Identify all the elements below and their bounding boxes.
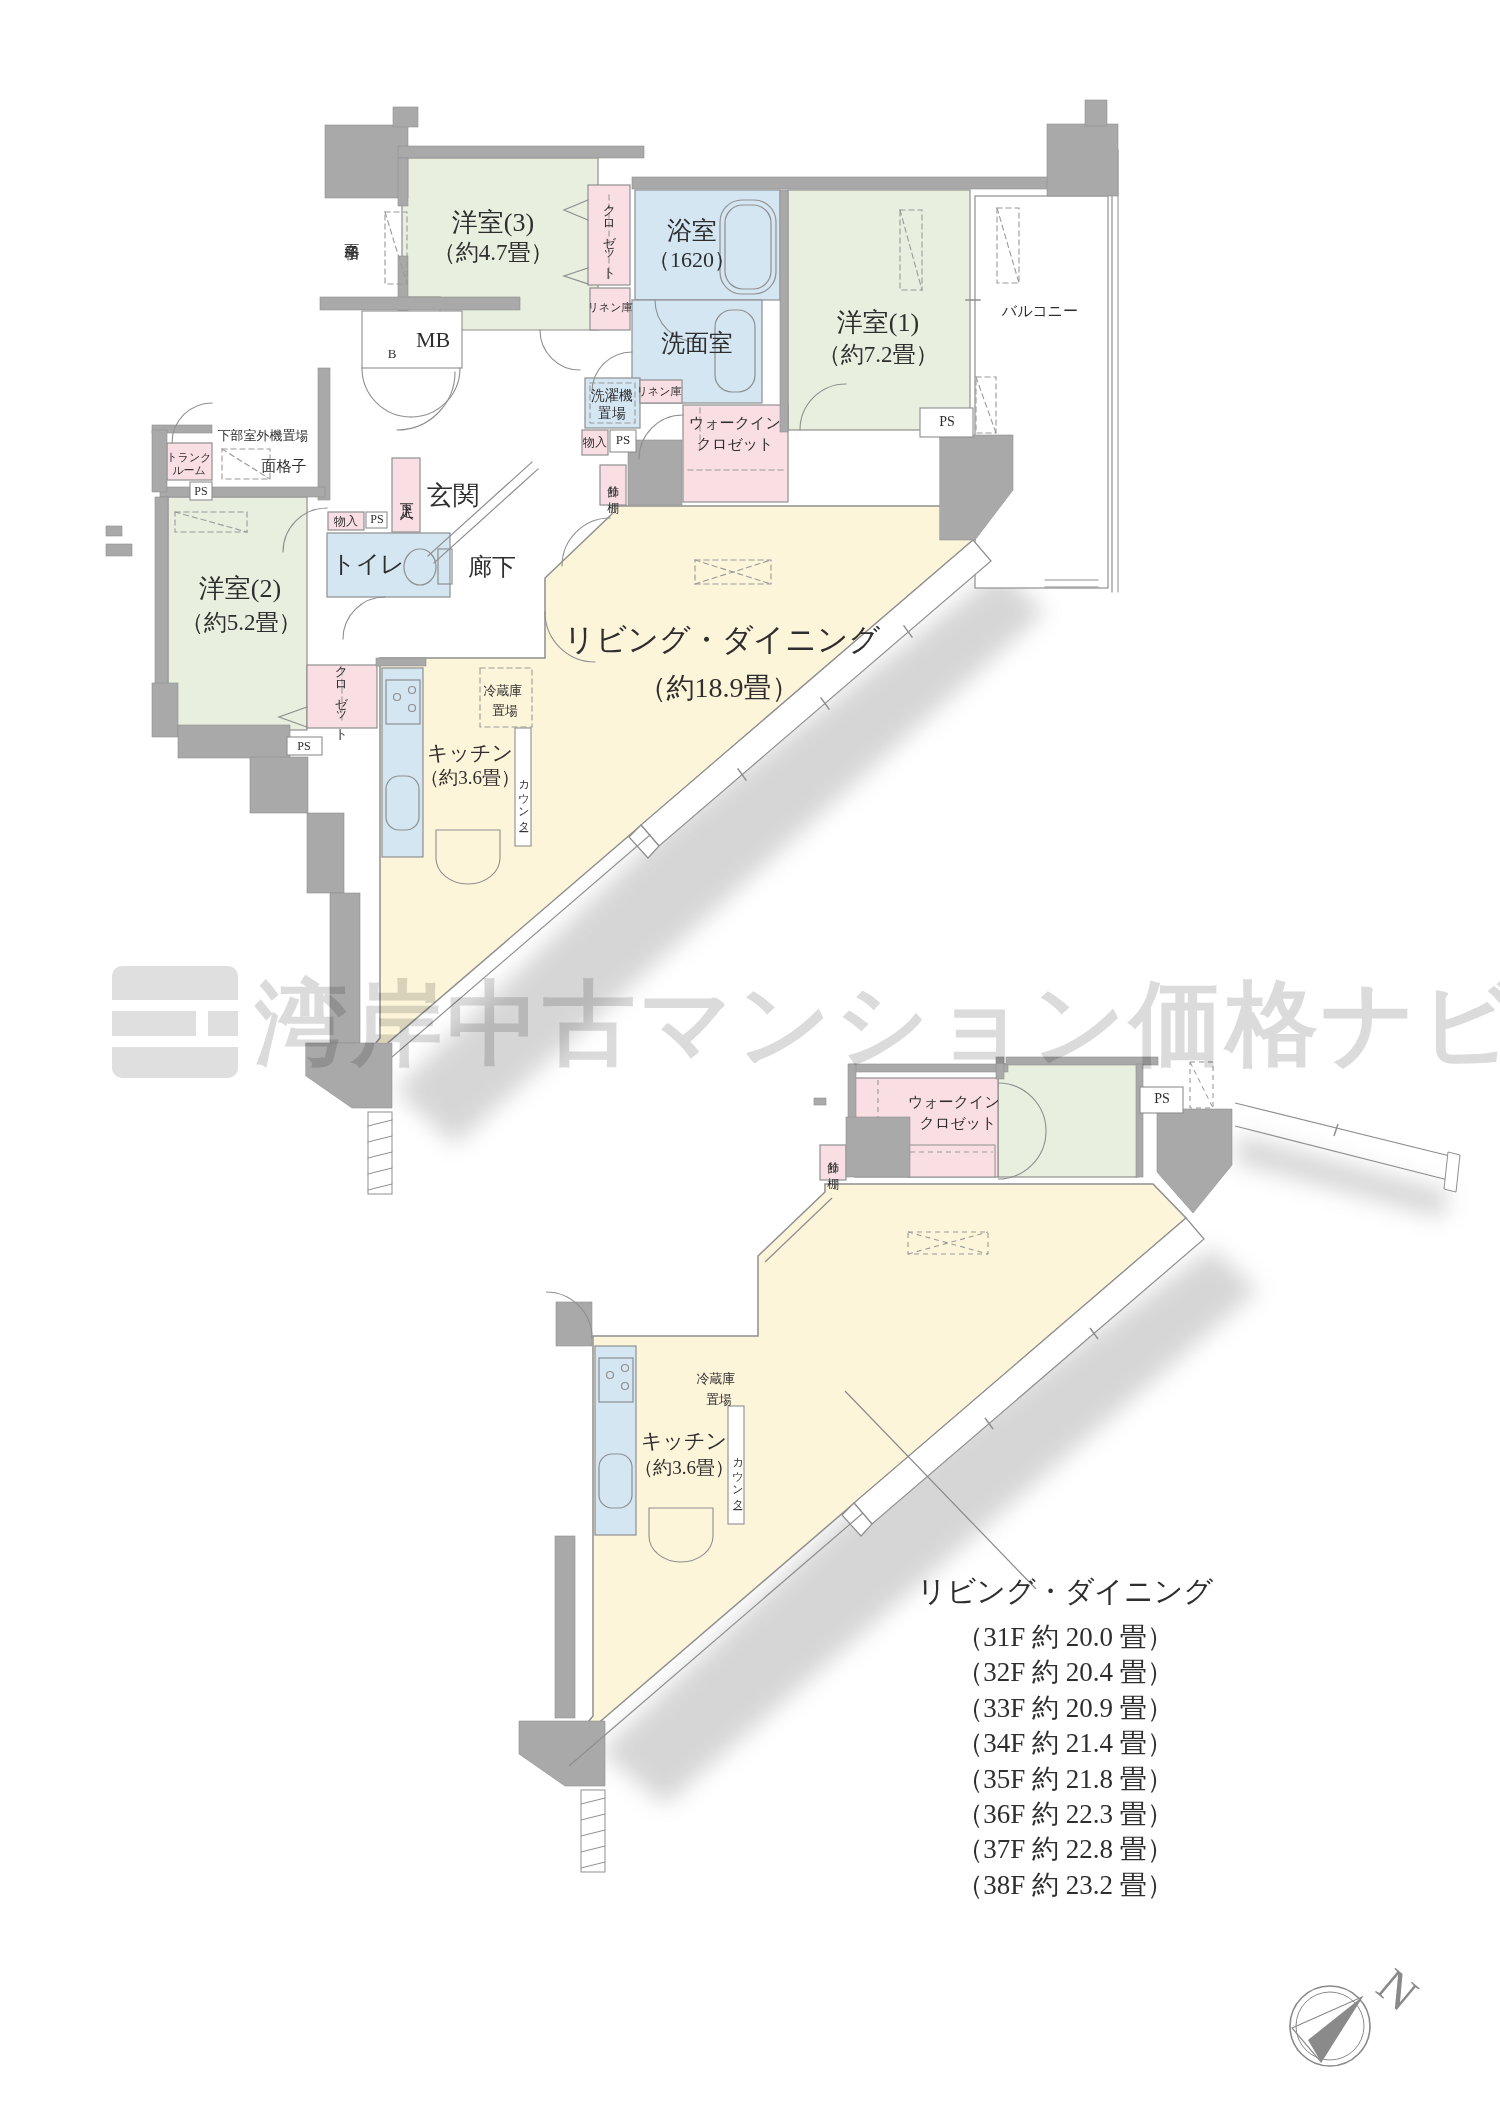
label-mb: MB (416, 328, 450, 351)
label-closet3: クロゼット (602, 195, 616, 274)
label-reizouko-lower-2: 置場 (706, 1393, 732, 1407)
floor-list-item: （34F 約 21.4 畳） (900, 1726, 1230, 1761)
label-sentakuki-2: 置場 (598, 407, 626, 422)
label-wic-lower-2: クロゼット (920, 1116, 997, 1132)
label-wic-lower-1: ウォークイン (908, 1095, 1000, 1111)
label-bath-name: 浴室 (667, 218, 717, 244)
label-living-upper-size: （約18.9畳） (639, 673, 800, 702)
floor-list-item: （33F 約 20.9 畳） (900, 1691, 1230, 1726)
label-kabu-shitsugaiki: 下部室外機置場 (218, 429, 309, 443)
label-reizouko-upper-1: 冷蔵庫 (484, 684, 523, 698)
label-kazaridana-lower: 飾り棚 (827, 1153, 840, 1170)
label-getabako: 下足入 (399, 493, 414, 496)
label-yoshitsu3-size: （約4.7畳） (433, 241, 554, 265)
floor-list-item: （31F 約 20.0 畳） (900, 1620, 1230, 1655)
label-bath-size: （1620） (648, 248, 736, 271)
label-yoshitsu3-name: 洋室(3) (452, 209, 534, 236)
label-menkoshi-top: 面格子 (343, 232, 359, 235)
compass-north-label: N (1368, 1958, 1429, 2021)
label-wic-upper-1: ウォークイン (689, 416, 781, 432)
label-ps-balcony: PS (939, 415, 955, 430)
label-yoshitsu2-name: 洋室(2) (199, 575, 281, 602)
watermark-text: 湾岸中古マンション価格ナビ (255, 962, 1500, 1086)
label-genkan: 玄関 (427, 482, 479, 509)
living-dining-floor-list: リビング・ダイニング （31F 約 20.0 畳） （32F 約 20.4 畳）… (900, 1572, 1230, 1903)
label-wic-upper-2: クロゼット (697, 437, 774, 453)
label-ps-lower: PS (1154, 1092, 1170, 1107)
label-living-upper-name: リビング・ダイニング (564, 624, 881, 657)
upper-hatch-strip (368, 1112, 392, 1194)
floor-list-title: リビング・ダイニング (900, 1572, 1230, 1612)
label-ps-5: PS (297, 740, 310, 753)
floor-list-item: （35F 約 21.8 畳） (900, 1762, 1230, 1797)
label-sentakuki-1: 洗濯機 (591, 389, 633, 404)
label-senmen: 洗面室 (661, 331, 733, 356)
floor-list-item: （32F 約 20.4 畳） (900, 1655, 1230, 1690)
label-ps-2: PS (616, 433, 630, 447)
label-closet2: クロゼット (334, 656, 348, 735)
label-trunk-2: ルーム (172, 465, 206, 477)
compass: N (1290, 1958, 1428, 2066)
label-yoshitsu1-size: （約7.2畳） (818, 343, 939, 367)
label-reizouko-upper-2: 置場 (492, 704, 518, 718)
label-trunk-1: トランク (166, 452, 211, 464)
label-kitchen-lower-size: （約3.6畳） (634, 1458, 734, 1478)
label-menkoshi-2: 面格子 (262, 459, 307, 475)
label-toilet: トイレ (331, 552, 405, 577)
label-rouka: 廊下 (468, 555, 516, 580)
upper-balcony (966, 150, 1118, 592)
lower-hatch-strip (581, 1790, 605, 1872)
floor-plan-page: N 湾岸中古マンション価格ナビ 面格子 洋室(3) （約4.7畳） クロゼット … (0, 0, 1500, 2121)
label-ps-4: PS (194, 485, 207, 498)
label-kazaridana-upper: 飾り棚 (607, 477, 620, 494)
label-counter-upper: カウンター (517, 772, 529, 827)
label-yoshitsu1-name: 洋室(1) (837, 309, 919, 336)
label-kitchen-upper-size: （約3.6畳） (420, 768, 520, 788)
label-balcony: バルコニー (1002, 304, 1078, 320)
label-counter-lower: カウンター (731, 1450, 743, 1505)
floor-list-item: （36F 約 22.3 畳） (900, 1797, 1230, 1832)
label-reizouko-lower-1: 冷蔵庫 (697, 1372, 736, 1386)
label-linen2: リネン庫 (637, 386, 682, 398)
watermark-logo-icon (112, 966, 238, 1078)
label-ps-3: PS (370, 513, 383, 526)
label-kitchen-upper-name: キッチン (427, 742, 513, 764)
label-monoire2: 物入 (334, 515, 358, 528)
label-linen1: リネン庫 (588, 302, 633, 314)
floor-list-item: （38F 約 23.2 畳） (900, 1868, 1230, 1903)
floor-list-item: （37F 約 22.8 畳） (900, 1832, 1230, 1867)
label-monoire1: 物入 (583, 436, 607, 449)
label-yoshitsu2-size: （約5.2畳） (181, 611, 302, 635)
label-mb-b: B (388, 347, 397, 361)
label-kitchen-lower-name: キッチン (641, 1430, 727, 1452)
